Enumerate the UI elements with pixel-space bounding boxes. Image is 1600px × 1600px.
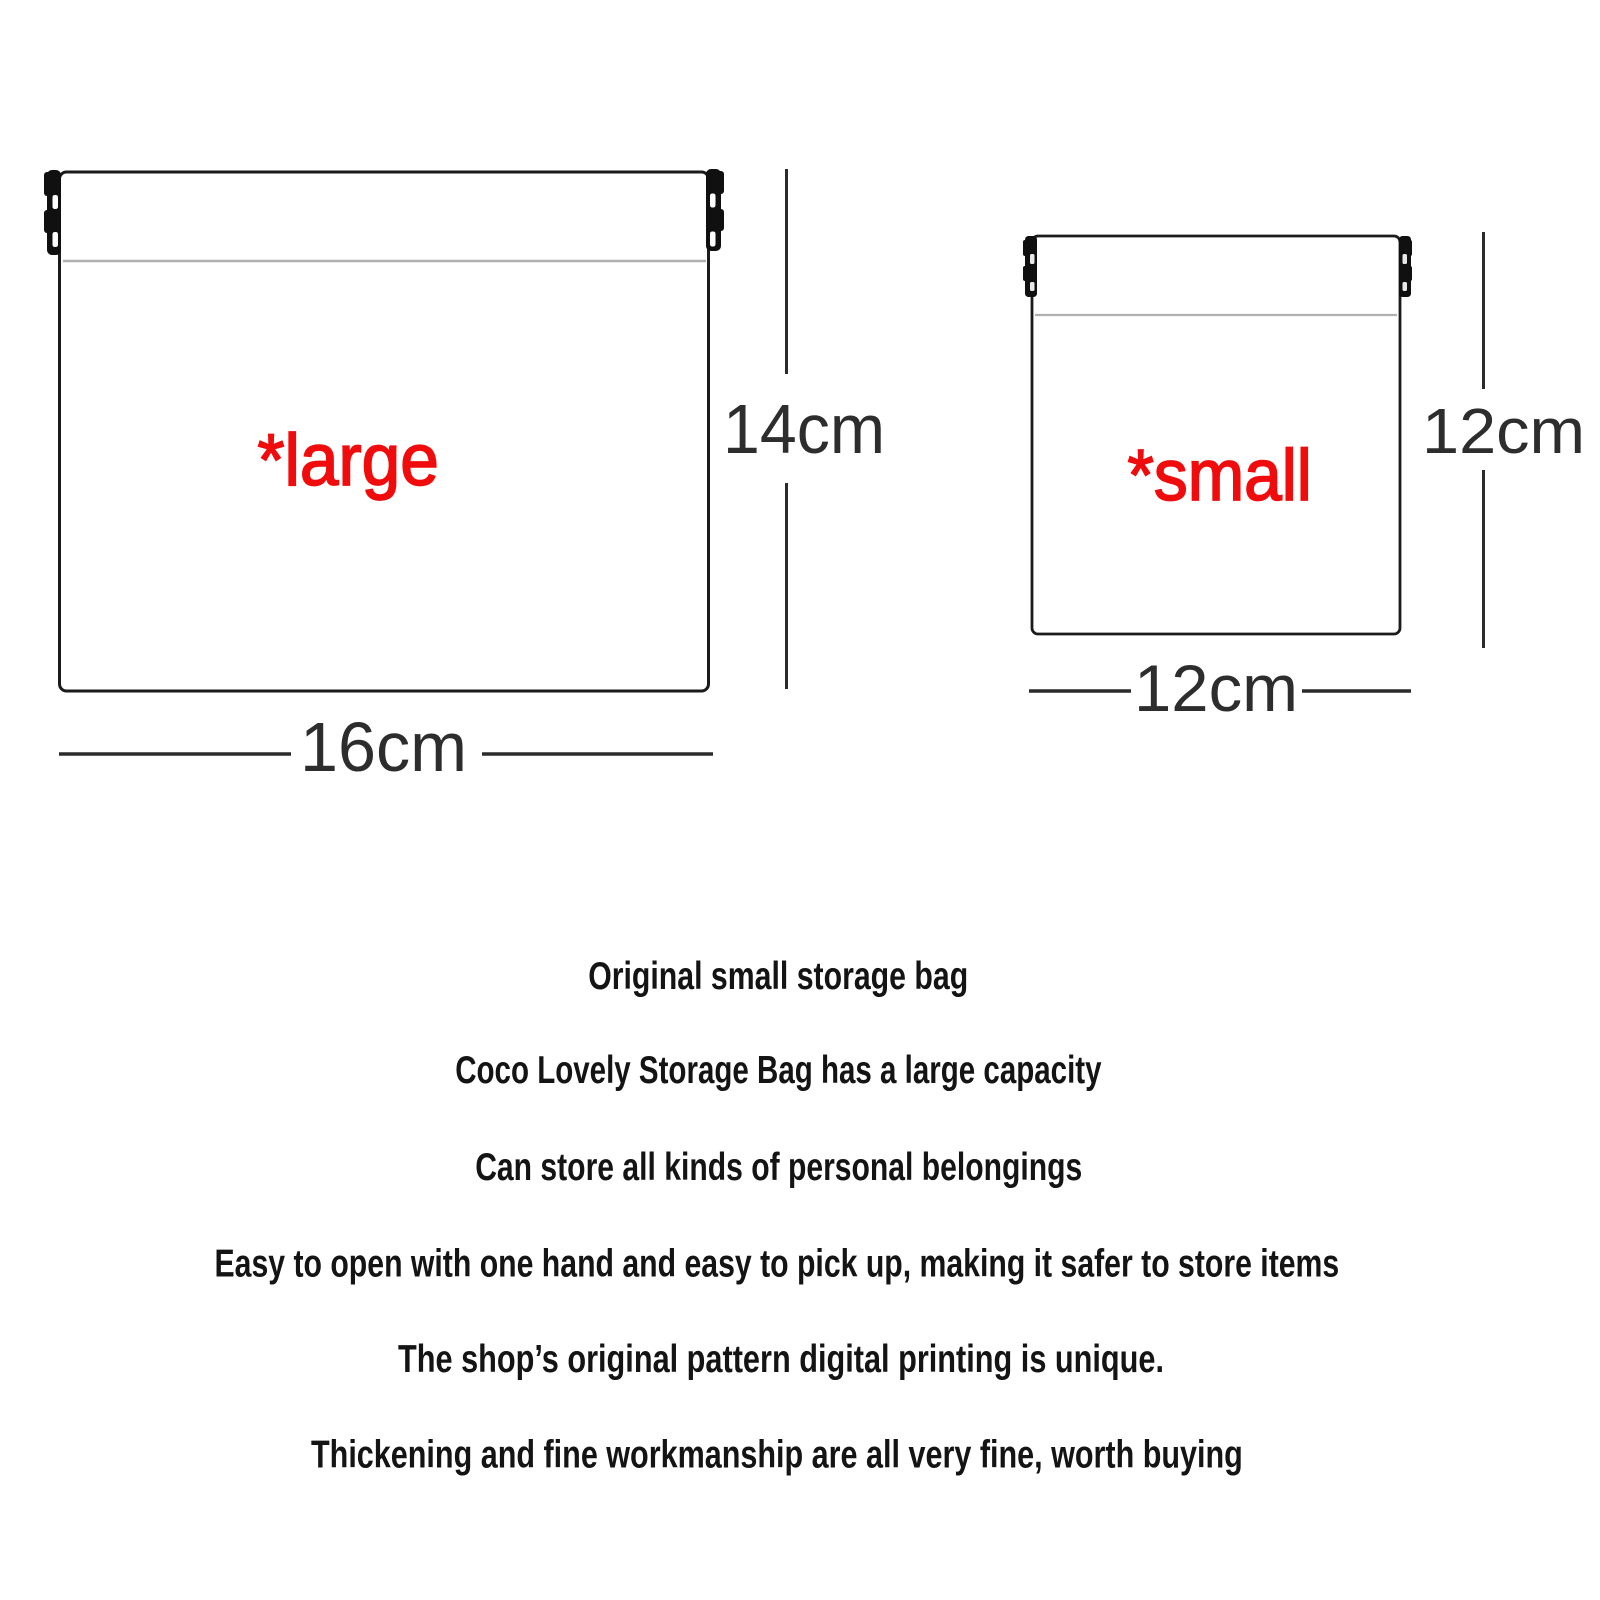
svg-text:Can store all kinds of persona: Can store all kinds of personal belongin… <box>475 1145 1082 1189</box>
svg-text:Thickening and fine workmanshi: Thickening and fine workmanship are all … <box>311 1433 1243 1476</box>
svg-text:Original small storage bag: Original small storage bag <box>588 954 968 998</box>
svg-text:Easy to open with one hand and: Easy to open with one hand and easy to p… <box>215 1242 1340 1286</box>
svg-text:*large: *large <box>258 420 439 501</box>
svg-text:*small: *small <box>1128 435 1312 515</box>
svg-text:14cm: 14cm <box>723 390 885 468</box>
svg-text:12cm: 12cm <box>1422 395 1585 467</box>
svg-text:16cm: 16cm <box>300 708 467 786</box>
svg-text:The shop’s original pattern di: The shop’s original pattern digital prin… <box>398 1338 1164 1381</box>
svg-text:12cm: 12cm <box>1134 651 1298 725</box>
svg-text:Coco Lovely Storage Bag has a: Coco Lovely Storage Bag has a large capa… <box>455 1049 1102 1092</box>
